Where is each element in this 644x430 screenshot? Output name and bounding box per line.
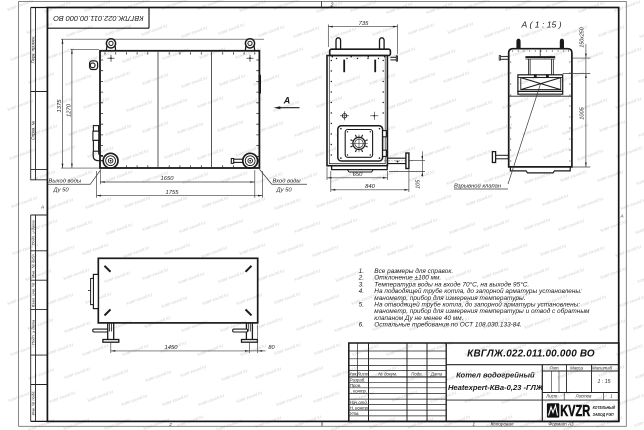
svg-text:1005: 1005 xyxy=(579,106,585,119)
svg-text:Лист: Лист xyxy=(356,371,368,376)
svg-text:А: А xyxy=(40,205,44,210)
svg-text:Выход воды: Выход воды xyxy=(49,179,82,185)
svg-text:Подп. и дата: Подп. и дата xyxy=(30,220,35,246)
svg-text:ЗАВОД РЭП: ЗАВОД РЭП xyxy=(593,412,615,417)
svg-text:Листов: Листов xyxy=(575,394,592,399)
svg-text:4.: 4. xyxy=(359,288,364,295)
svg-text:1650: 1650 xyxy=(161,176,175,182)
svg-text:Остальные требования по ОСТ 10: Остальные требования по ОСТ 108.030.133-… xyxy=(374,321,521,329)
svg-text:650: 650 xyxy=(353,172,363,178)
svg-text:840: 840 xyxy=(365,184,375,190)
svg-text:Ду 50: Ду 50 xyxy=(276,187,293,193)
svg-text:Взам. инв. №: Взам. инв. № xyxy=(30,282,35,307)
svg-text:Heatexpert-КВа-0,23 -ГЛЖ: Heatexpert-КВа-0,23 -ГЛЖ xyxy=(448,383,544,392)
svg-text:Нач.отд.: Нач.отд. xyxy=(350,400,368,405)
svg-text:Лист: Лист xyxy=(545,394,557,399)
svg-text:5.: 5. xyxy=(359,302,364,309)
svg-text:1450: 1450 xyxy=(165,345,179,351)
svg-text:Перв. примен.: Перв. примен. xyxy=(30,36,35,64)
svg-text:Пров.: Пров. xyxy=(350,383,361,388)
svg-text:А: А xyxy=(283,96,291,106)
svg-text:№ докум.: № докум. xyxy=(378,371,397,376)
svg-text:Утв.: Утв. xyxy=(350,411,360,416)
svg-text:Разраб.: Разраб. xyxy=(350,378,366,383)
svg-text:А ( 1 : 15 ): А ( 1 : 15 ) xyxy=(520,19,561,29)
svg-text:Инв. № дубл.: Инв. № дубл. xyxy=(30,253,35,278)
svg-text:Инв. № подл.: Инв. № подл. xyxy=(30,391,35,416)
svg-text:KVZR: KVZR xyxy=(560,403,590,420)
svg-text:Подп. и дата: Подп. и дата xyxy=(30,319,35,345)
svg-text:Справ. №: Справ. № xyxy=(30,121,35,140)
svg-text:Подп.: Подп. xyxy=(411,371,422,376)
svg-text:1375: 1375 xyxy=(57,99,63,113)
svg-text:2: 2 xyxy=(168,422,172,427)
svg-text:Изм.: Изм. xyxy=(348,371,357,376)
svg-text:КВГЛЖ.022.011.00.000 ВО: КВГЛЖ.022.011.00.000 ВО xyxy=(467,349,595,360)
svg-text:КОТЕЛЬНЫЙ: КОТЕЛЬНЫЙ xyxy=(593,405,616,410)
svg-text:105: 105 xyxy=(415,179,421,189)
svg-text:1270: 1270 xyxy=(66,103,72,117)
svg-text:Котел водогрейный: Котел водогрейный xyxy=(456,371,535,380)
svg-text:Взрывной клапан: Взрывной клапан xyxy=(454,183,502,190)
svg-text:. контр.: . контр. xyxy=(351,389,367,394)
svg-text:6.: 6. xyxy=(359,322,364,329)
svg-text:1755: 1755 xyxy=(166,190,180,196)
svg-text:Лит.: Лит. xyxy=(549,366,560,371)
svg-text:2: 2 xyxy=(330,3,334,9)
svg-text:Дата: Дата xyxy=(430,371,443,376)
svg-text:А: А xyxy=(619,214,623,219)
svg-text:КВГЛЖ.022.011.00.000 ВО: КВГЛЖ.022.011.00.000 ВО xyxy=(53,14,144,23)
svg-text:Вход воды: Вход воды xyxy=(273,179,302,185)
svg-text:Ду 50: Ду 50 xyxy=(53,187,70,193)
svg-text:80: 80 xyxy=(268,345,275,351)
svg-text:Н. контр.: Н. контр. xyxy=(350,405,369,410)
svg-text:Копировал: Копировал xyxy=(491,422,514,427)
svg-text:735: 735 xyxy=(359,21,369,27)
svg-text:1 : 15: 1 : 15 xyxy=(598,379,611,385)
svg-text:Масса: Масса xyxy=(570,366,583,371)
svg-text:150х250: 150х250 xyxy=(579,27,585,47)
svg-text:Масштаб: Масштаб xyxy=(592,366,613,371)
svg-text:Формат А3: Формат А3 xyxy=(548,422,574,427)
svg-text:1: 1 xyxy=(473,422,476,427)
